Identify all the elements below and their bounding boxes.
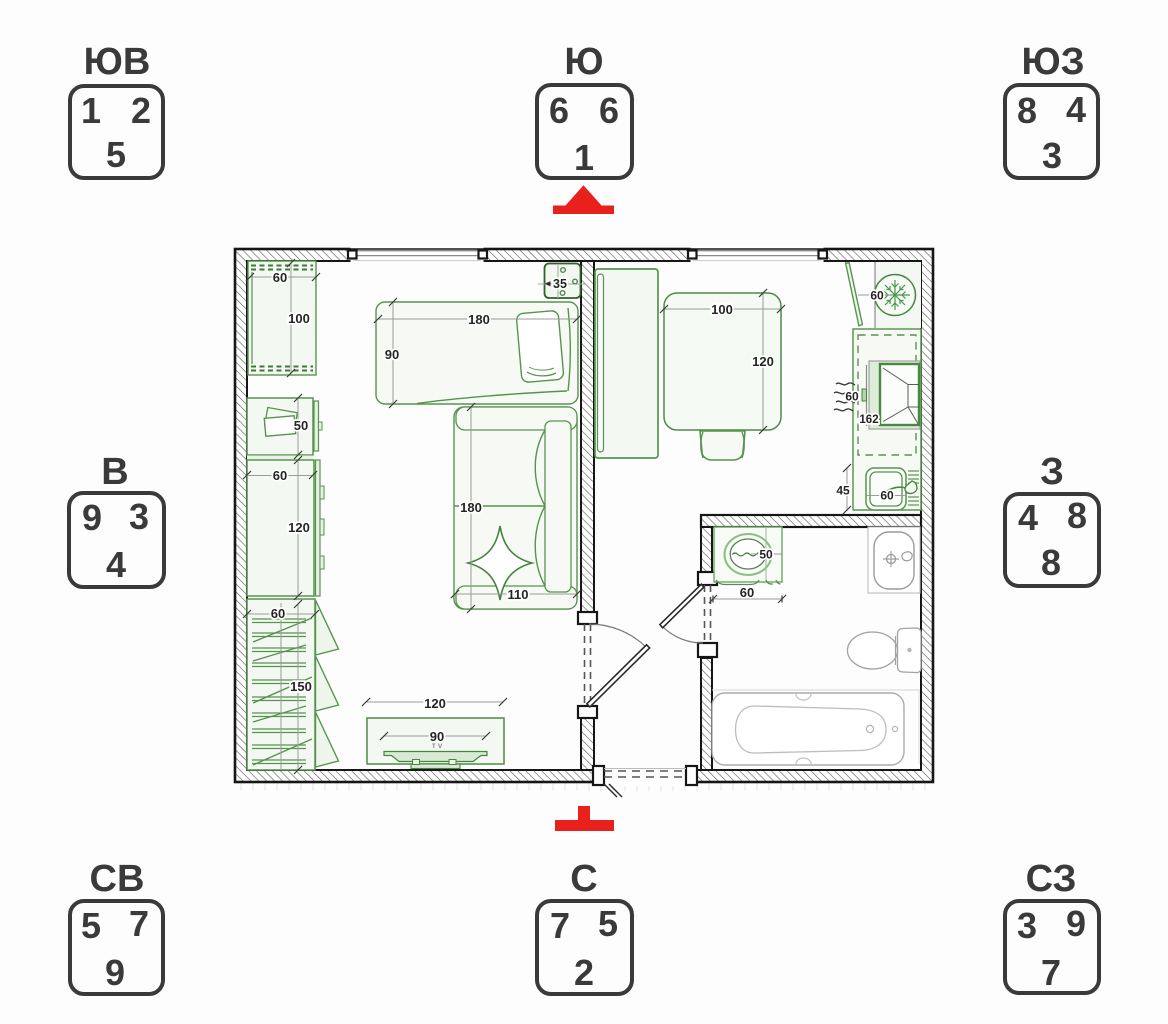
svg-text:ЮЗ: ЮЗ xyxy=(1022,41,1085,83)
svg-text:45: 45 xyxy=(836,484,850,498)
svg-text:120: 120 xyxy=(288,520,310,535)
svg-text:3: 3 xyxy=(1042,135,1062,176)
svg-text:50: 50 xyxy=(759,548,773,562)
svg-text:4: 4 xyxy=(106,544,126,585)
svg-text:110: 110 xyxy=(508,587,529,602)
svg-text:5: 5 xyxy=(598,903,618,944)
svg-text:8: 8 xyxy=(1067,495,1087,536)
svg-text:С: С xyxy=(570,858,597,900)
svg-text:6: 6 xyxy=(549,90,569,131)
svg-text:180: 180 xyxy=(468,312,490,327)
svg-text:60: 60 xyxy=(870,289,884,303)
svg-text:7: 7 xyxy=(1041,952,1061,993)
svg-text:60: 60 xyxy=(740,585,754,600)
svg-text:3: 3 xyxy=(1017,905,1037,946)
svg-text:З: З xyxy=(1040,451,1064,493)
svg-text:150: 150 xyxy=(290,679,312,694)
svg-text:90: 90 xyxy=(385,347,399,362)
svg-text:120: 120 xyxy=(752,354,774,369)
svg-text:7: 7 xyxy=(129,903,149,944)
svg-text:СЗ: СЗ xyxy=(1026,858,1077,900)
svg-text:162: 162 xyxy=(859,414,878,426)
svg-text:В: В xyxy=(101,451,128,493)
svg-text:100: 100 xyxy=(711,302,733,317)
svg-text:60: 60 xyxy=(271,606,285,621)
svg-text:60: 60 xyxy=(880,489,894,503)
svg-text:60: 60 xyxy=(845,390,859,404)
svg-text:1: 1 xyxy=(81,90,101,131)
svg-text:50: 50 xyxy=(294,418,308,433)
svg-text:35: 35 xyxy=(553,277,567,291)
svg-text:т v: т v xyxy=(432,741,443,750)
svg-text:5: 5 xyxy=(81,905,101,946)
svg-text:2: 2 xyxy=(574,952,594,993)
svg-text:180: 180 xyxy=(460,500,482,515)
svg-text:СВ: СВ xyxy=(90,858,145,900)
svg-text:3: 3 xyxy=(129,496,149,537)
svg-text:100: 100 xyxy=(288,311,310,326)
svg-text:4: 4 xyxy=(1066,89,1086,130)
svg-text:60: 60 xyxy=(273,270,287,285)
svg-text:7: 7 xyxy=(550,905,570,946)
svg-text:5: 5 xyxy=(106,134,126,175)
svg-text:8: 8 xyxy=(1041,542,1061,583)
svg-text:ЮВ: ЮВ xyxy=(84,41,151,83)
svg-text:120: 120 xyxy=(424,696,446,711)
svg-text:1: 1 xyxy=(574,137,594,178)
svg-text:2: 2 xyxy=(131,90,151,131)
svg-text:6: 6 xyxy=(599,90,619,131)
svg-text:Ю: Ю xyxy=(564,41,603,83)
svg-text:8: 8 xyxy=(1017,90,1037,131)
svg-text:9: 9 xyxy=(82,497,102,538)
svg-text:9: 9 xyxy=(1066,903,1086,944)
svg-text:60: 60 xyxy=(273,468,287,483)
svg-text:4: 4 xyxy=(1018,497,1038,538)
svg-text:9: 9 xyxy=(105,952,125,993)
